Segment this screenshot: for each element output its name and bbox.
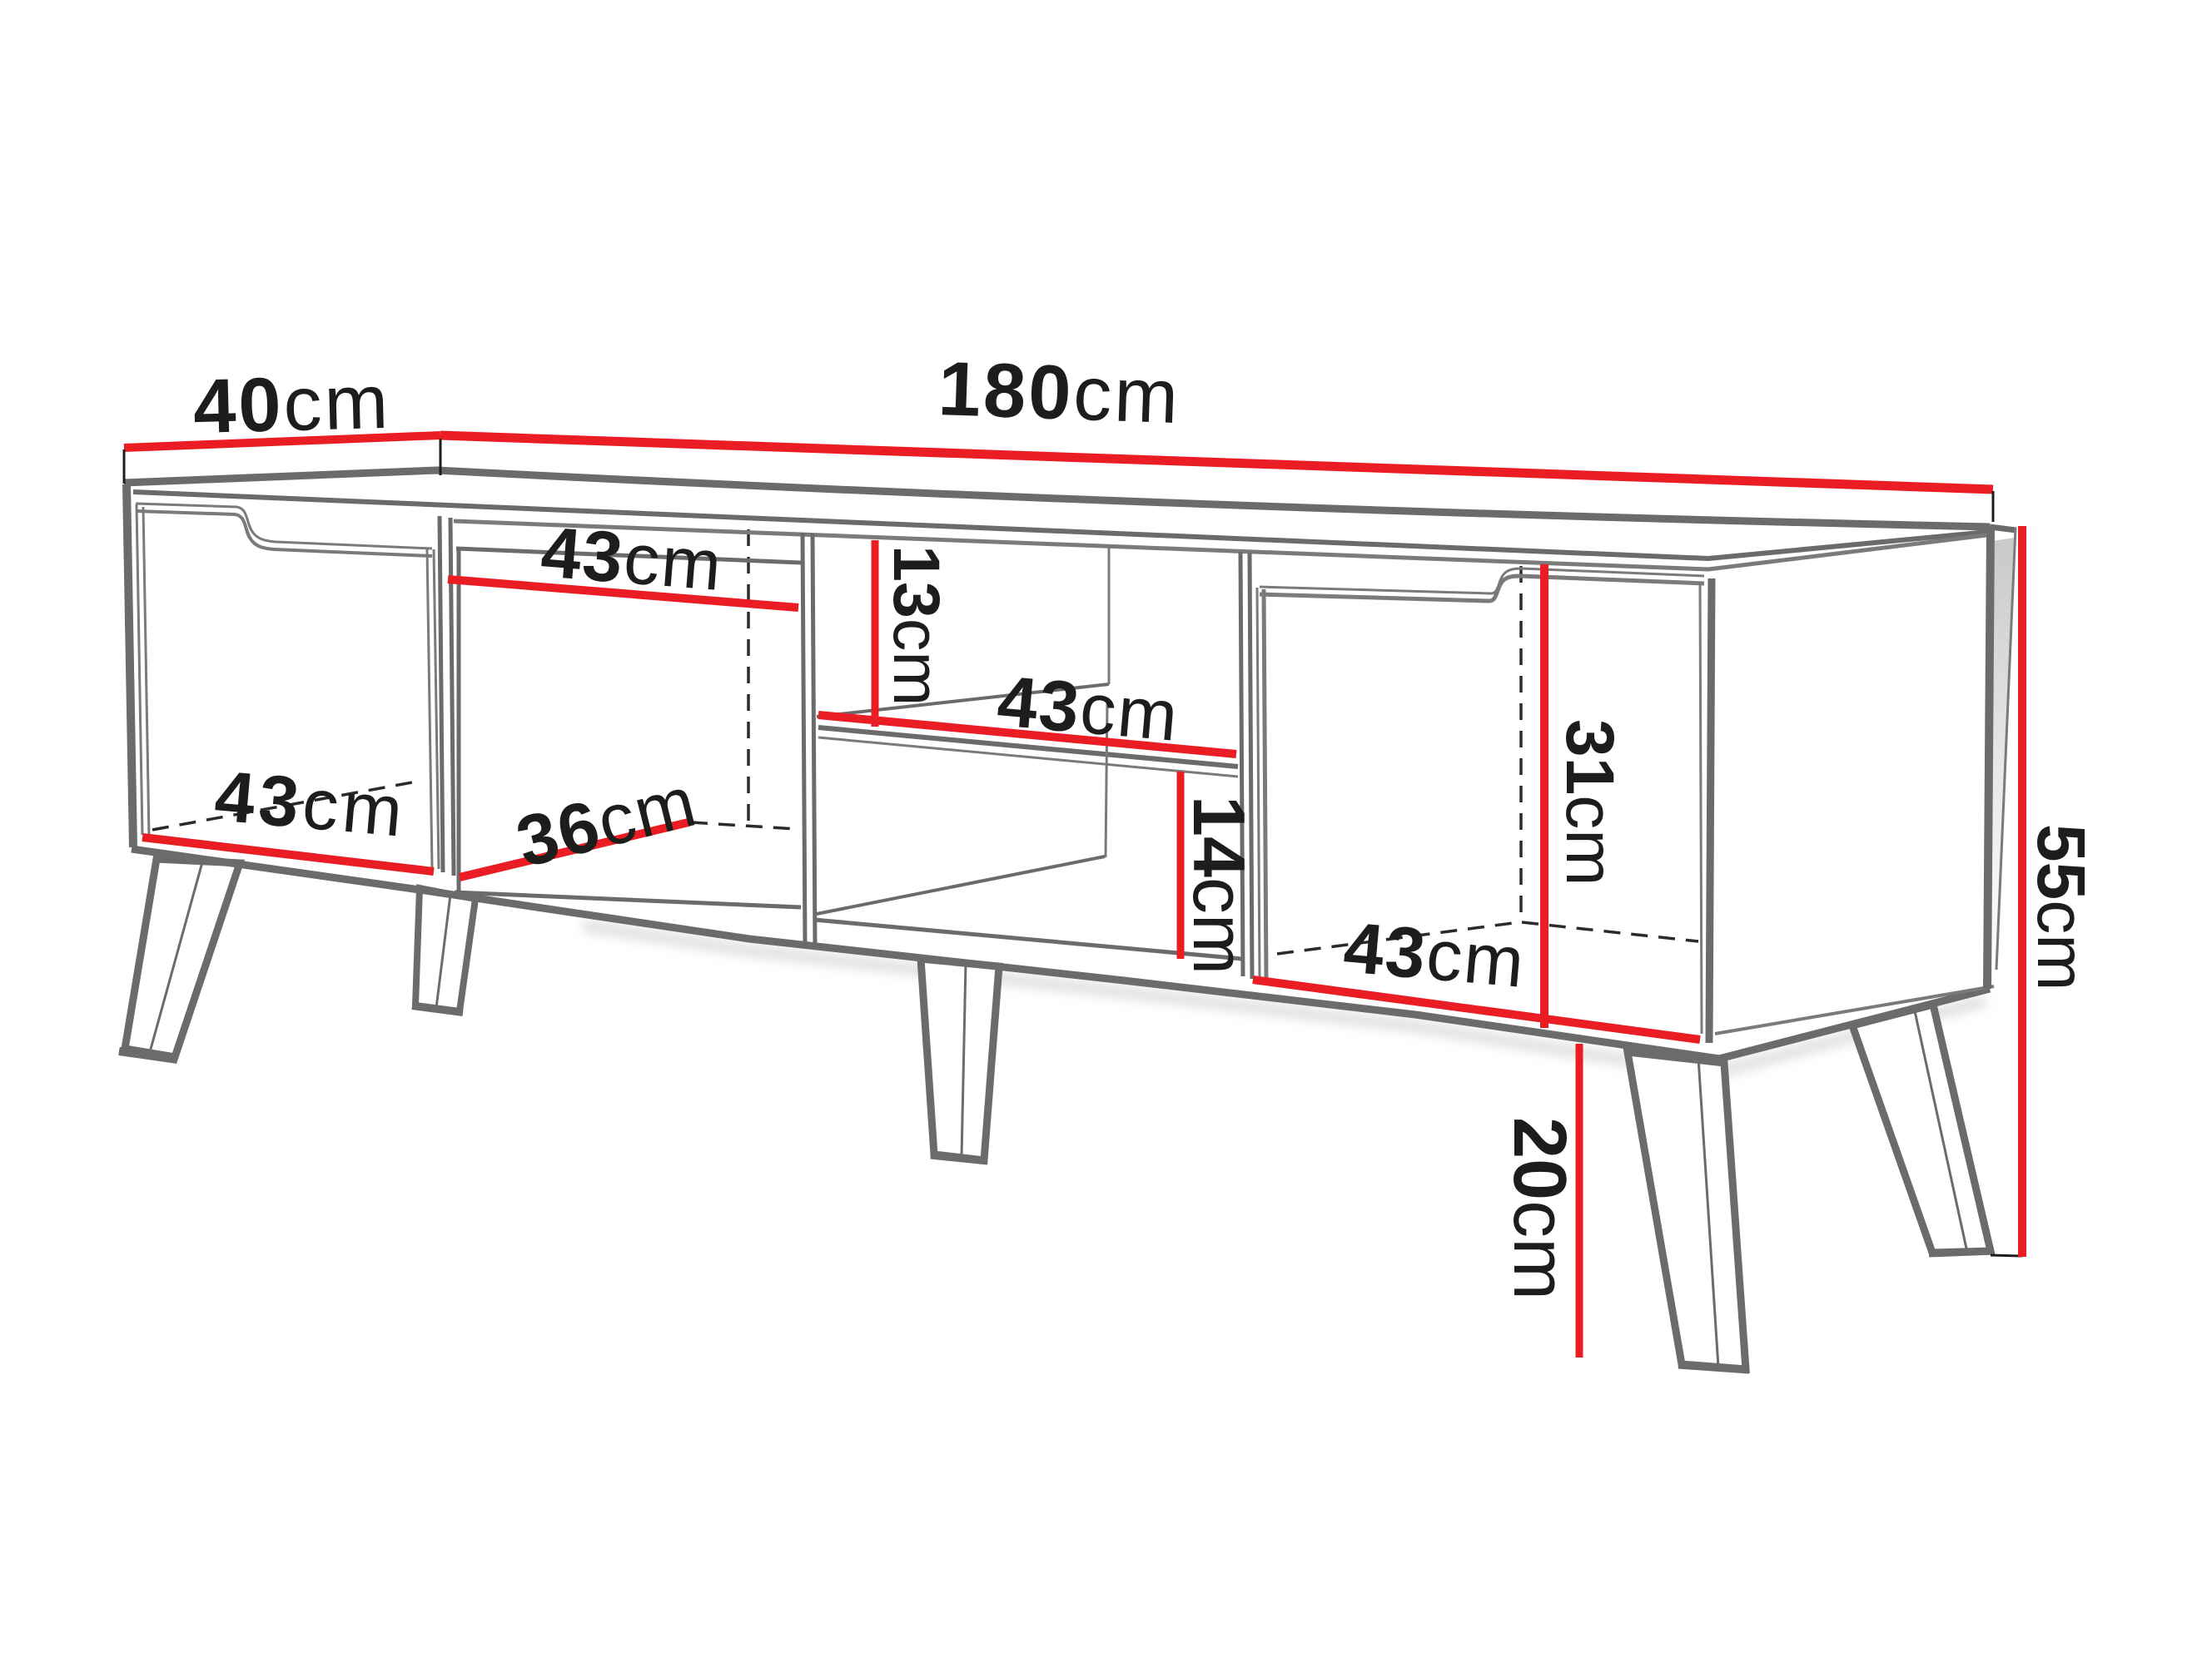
svg-text:14cm: 14cm: [1178, 796, 1260, 975]
svg-text:43cm: 43cm: [1340, 907, 1529, 1003]
svg-text:43cm: 43cm: [994, 661, 1182, 757]
svg-text:31cm: 31cm: [1552, 719, 1628, 886]
svg-text:55cm: 55cm: [2023, 824, 2099, 991]
svg-text:40cm: 40cm: [192, 360, 392, 449]
svg-text:20cm: 20cm: [1498, 1117, 1581, 1300]
svg-text:180cm: 180cm: [937, 346, 1182, 439]
svg-text:43cm: 43cm: [539, 512, 726, 606]
svg-text:13cm: 13cm: [880, 545, 954, 706]
svg-text:43cm: 43cm: [211, 756, 410, 852]
